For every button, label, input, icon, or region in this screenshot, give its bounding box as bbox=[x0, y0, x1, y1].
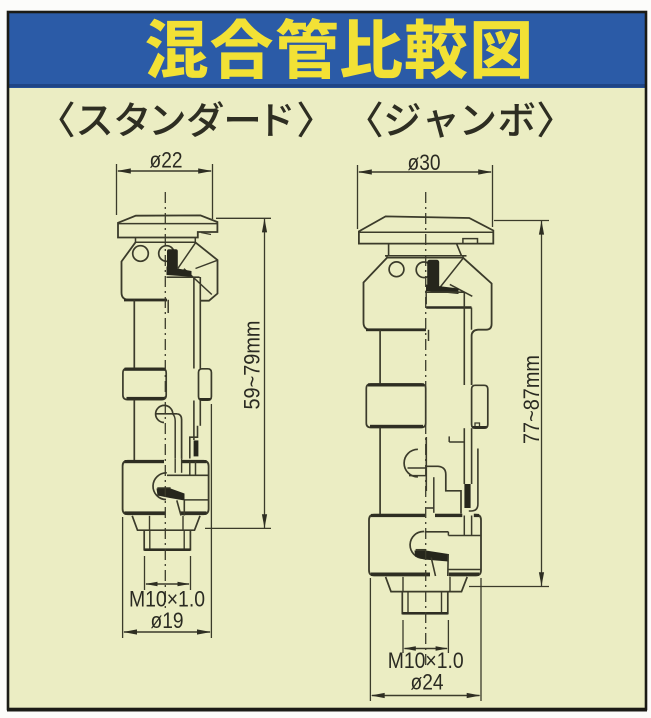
svg-text:ø24: ø24 bbox=[411, 670, 444, 695]
svg-text:ø22: ø22 bbox=[150, 148, 183, 173]
svg-text:59~79mm: 59~79mm bbox=[240, 321, 265, 410]
svg-text:ø19: ø19 bbox=[151, 608, 184, 633]
svg-text:ø30: ø30 bbox=[408, 150, 441, 175]
svg-text:77~87mm: 77~87mm bbox=[519, 355, 544, 444]
